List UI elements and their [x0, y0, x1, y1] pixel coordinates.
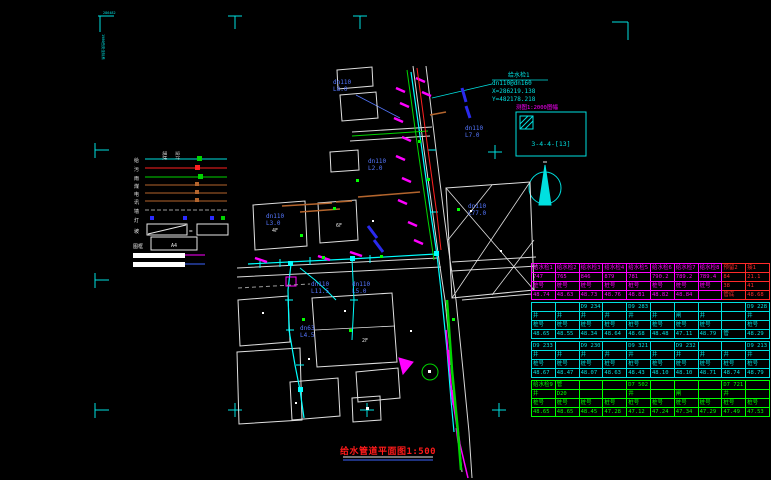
table-cell: 48.82: [650, 291, 674, 300]
table-cell: 47.28: [603, 408, 627, 417]
markers-rect: [452, 318, 455, 321]
table-cell: 桩号: [627, 360, 651, 369]
table-cell: 预留2: [722, 264, 746, 273]
table-cell: [698, 342, 722, 351]
legend-label: 图框: [133, 243, 143, 250]
table-cell: 桩号: [627, 282, 651, 291]
table-cell: [650, 303, 674, 312]
table-cell: D9 230: [579, 342, 603, 351]
markers-rect: [349, 329, 352, 332]
table-cell: 846: [579, 273, 603, 282]
table-cell: D7 502: [627, 381, 651, 390]
table-cell: 管: [555, 381, 579, 390]
buildings: [237, 67, 534, 424]
table-cell: 井: [532, 351, 556, 360]
table-cell: 48.68: [746, 291, 770, 300]
table-cell: 桩号: [627, 399, 651, 408]
table-cell: 桩号: [698, 282, 722, 291]
table-cell: 接1: [746, 264, 770, 273]
water-pipes-rect: [350, 256, 355, 261]
table-cell: 管底: [722, 291, 746, 300]
markers-rect: [418, 140, 421, 143]
legend-rect: [195, 190, 199, 194]
table-cell: D9 234: [579, 303, 603, 312]
hydrant-symbols-line: [408, 222, 417, 226]
pipe-labels-label: L2.0: [368, 165, 383, 172]
table-cell: 48.65: [532, 408, 556, 417]
table-cell: [579, 390, 603, 399]
table-cell: 48.81: [627, 291, 651, 300]
sheet-marks-label: 286482: [103, 11, 116, 15]
table-cell: 48.45: [579, 408, 603, 417]
water-pipes-rect: [288, 261, 293, 266]
buildings-polygon: [446, 182, 534, 298]
table-cell: 48.67: [532, 369, 556, 378]
table-cell: 47.11: [674, 330, 698, 339]
legend-label: 给: [134, 157, 139, 164]
table-cell: 48.64: [603, 330, 627, 339]
legend-label: 墙: [134, 208, 139, 215]
table-section-3: 给水检9管D7 502D7 721井D20井闸井桩号桩号桩号桩号桩号桩号桩号桩号…: [531, 380, 770, 417]
pipe-labels-label: 4F: [272, 228, 278, 234]
legend-rect: [195, 198, 199, 202]
table-cell: 781: [627, 273, 651, 282]
table-cell: 井: [532, 312, 556, 321]
pipe-labels-label: dn110: [352, 281, 370, 288]
table-cell: 井: [555, 312, 579, 321]
table-cell: [603, 381, 627, 390]
legend-label: 电: [134, 191, 139, 198]
utility-lines: [238, 68, 470, 470]
table-cell: 47.24: [650, 408, 674, 417]
legend-label: 煤: [134, 183, 139, 190]
table-section-1: D9 234D9 283D9 228井井井井井井闸井井桩号桩号桩号桩号桩号桩号桩…: [531, 302, 770, 339]
table-cell: 管: [722, 330, 746, 339]
legend-rect: [150, 216, 154, 220]
roads-line: [452, 257, 536, 262]
legend-rect: [133, 262, 185, 267]
markers-rect: [366, 407, 369, 410]
table-cell: 48.48: [650, 330, 674, 339]
table-cell: 桩号: [746, 399, 770, 408]
table-cell: [746, 381, 770, 390]
markers-rect: [380, 255, 383, 258]
table-cell: 桩号: [722, 399, 746, 408]
legend-rect: [197, 156, 202, 161]
detail-index: [516, 112, 586, 156]
table-cell: 桩号: [674, 360, 698, 369]
table-cell: 桩号: [674, 321, 698, 330]
table-cell: 给水检9: [532, 381, 556, 390]
annotation-well-name: 给水检1: [492, 72, 535, 80]
markers-rect: [427, 178, 430, 181]
table-cell: [674, 381, 698, 390]
pipe-labels-label: L77.0: [468, 210, 486, 217]
legend-label: 雨: [134, 176, 139, 182]
hydrant-symbols-polygon: [399, 358, 413, 374]
table-cell: 48.43: [627, 369, 651, 378]
utility-lines-line: [430, 112, 446, 115]
hydrant-symbols-line: [396, 156, 405, 160]
table-cell: 790.2: [650, 273, 674, 282]
detail-index-rect: [516, 112, 586, 156]
hydrant-symbols-line: [350, 252, 362, 256]
table-cell: 桩号: [698, 399, 722, 408]
legend-label: 坡: [134, 228, 139, 235]
table-cell: 给水检2: [555, 264, 579, 273]
pipe-labels-label: dn110: [368, 158, 386, 165]
water-pipes-rect: [434, 251, 439, 256]
table-cell: 桩号: [746, 360, 770, 369]
table-cell: 井: [627, 390, 651, 399]
table-cell: 48.29: [746, 330, 770, 339]
table-cell: 48.79: [698, 330, 722, 339]
table-cell: 井: [674, 351, 698, 360]
buildings-line: [446, 188, 534, 290]
table-cell: 48.10: [650, 369, 674, 378]
north-arrow-polygon: [539, 165, 551, 205]
annotation-pipe-spec: dn110@dn160: [492, 80, 535, 88]
table-cell: 47.29: [698, 408, 722, 417]
table-cell: D20: [555, 390, 579, 399]
legend-line: [148, 225, 186, 234]
table-cell: 48.63: [555, 291, 579, 300]
table-cell: 765: [555, 273, 579, 282]
table-cell: 给水检3: [579, 264, 603, 273]
hydrant-symbols-line: [255, 258, 267, 262]
table-cell: 789.4: [698, 273, 722, 282]
table-cell: 桩号: [746, 321, 770, 330]
pipe-labels-label: 2F: [362, 338, 368, 344]
table-cell: 47.12: [627, 408, 651, 417]
legend-rect: [221, 216, 225, 220]
table-cell: 井: [698, 312, 722, 321]
table-cell: 47.49: [722, 408, 746, 417]
roads-line: [452, 266, 537, 271]
legend-label: 灯: [134, 217, 139, 224]
table-cell: 38: [722, 282, 746, 291]
legend-rect: [183, 216, 187, 220]
legend-rect: [195, 165, 200, 170]
table-cell: 给水检1: [532, 264, 556, 273]
pipe-labels-label: L7.0: [465, 132, 480, 139]
table-cell: D9 283: [627, 303, 651, 312]
pipe-labels-label: L4.5: [300, 332, 315, 339]
table-cell: 桩号: [579, 399, 603, 408]
table-cell: 48.76: [603, 291, 627, 300]
table-cell: 井: [650, 351, 674, 360]
table-cell: 桩号: [674, 399, 698, 408]
markers-rect: [410, 330, 412, 332]
buildings-line: [452, 182, 530, 298]
table-cell: 给水检4: [603, 264, 627, 273]
sheet-marks-label: 1980西安坐标系: [101, 34, 106, 60]
table-cell: 井: [579, 312, 603, 321]
table-cell: 桩号: [603, 360, 627, 369]
table-cell: 井: [698, 351, 722, 360]
table-cell: [722, 321, 746, 330]
markers-rect: [322, 256, 325, 259]
hydrant-symbols: [255, 78, 468, 478]
buildings-polygon: [312, 293, 397, 367]
table-cell: 48.65: [555, 408, 579, 417]
markers-rect: [372, 220, 374, 222]
table-cell: 84: [722, 273, 746, 282]
legend-rect: [195, 182, 199, 186]
table-cell: 井: [627, 351, 651, 360]
table-cell: 桩号: [579, 282, 603, 291]
markers-rect: [262, 312, 264, 314]
table-cell: [722, 342, 746, 351]
utility-lines-line: [374, 240, 383, 252]
pipe-labels-label: 6F: [336, 223, 342, 229]
table-cell: [555, 342, 579, 351]
utility-lines-line: [368, 226, 377, 238]
pipe-labels-label: dn110: [465, 125, 483, 132]
table-cell: 桩号: [532, 321, 556, 330]
table-cell: 桩号: [579, 321, 603, 330]
table-cell: 桩号: [555, 360, 579, 369]
pipe-labels: dn110L8.0dn110L7.0dn110L77.0dn110L3.0dn1…: [266, 79, 486, 344]
table-cell: 桩号: [555, 399, 579, 408]
detail-index-sheet-no: 3-4-4-[13]: [516, 140, 586, 148]
utility-lines-line: [238, 284, 310, 288]
table-cell: 桩号: [650, 360, 674, 369]
table-cell: D7 721: [722, 381, 746, 390]
table-cell: [746, 390, 770, 399]
drawing-title: 给水管道平面图1:500: [336, 444, 440, 457]
table-cell: 井: [603, 351, 627, 360]
markers-rect: [356, 179, 359, 182]
table-cell: [532, 303, 556, 312]
table-cell: [698, 390, 722, 399]
table-cell: [722, 303, 746, 312]
utility-lines-line: [358, 192, 420, 197]
buildings-polygon: [237, 348, 302, 424]
table-cell: [698, 303, 722, 312]
table-cell: 桩号: [603, 282, 627, 291]
roads-line: [462, 294, 532, 300]
table-cell: 井: [746, 351, 770, 360]
table-cell: 井: [603, 312, 627, 321]
buildings-polygon: [238, 296, 290, 346]
table-cell: 给水检6: [650, 264, 674, 273]
table-cell: [698, 291, 722, 300]
buildings-polygon: [318, 200, 358, 243]
table-cell: 井: [627, 312, 651, 321]
buildings-polygon: [290, 378, 340, 420]
markers-rect: [333, 207, 336, 210]
table-cell: 47.53: [746, 408, 770, 417]
table-cell: 桩号: [650, 321, 674, 330]
detail-index-caption: 测图1:2000图幅: [516, 103, 558, 111]
pipe-labels-label: dn110: [266, 213, 284, 220]
table-cell: 747: [532, 273, 556, 282]
table-cell: [650, 390, 674, 399]
markers-rect: [500, 250, 502, 252]
hydrant-symbols-line: [414, 240, 423, 244]
table-cell: 桩号: [674, 282, 698, 291]
markers-rect: [295, 402, 297, 404]
table-cell: [650, 342, 674, 351]
table-cell: 48.55: [555, 330, 579, 339]
legend: 现状设计给污雨煤电讯墙灯坡=图框A4: [133, 151, 228, 267]
table-cell: [650, 381, 674, 390]
table-cell: 789.2: [674, 273, 698, 282]
table-cell: 给水检8: [698, 264, 722, 273]
table-cell: 48.34: [579, 330, 603, 339]
table-cell: 井: [722, 351, 746, 360]
legend-label: =: [189, 228, 193, 235]
legend-label: 讯: [134, 199, 139, 206]
utility-lines-line: [282, 203, 332, 206]
hydrant-symbols-line: [416, 78, 425, 82]
table-cell: 桩号: [532, 282, 556, 291]
table-cell: D9 233: [532, 342, 556, 351]
table-cell: 闸: [674, 312, 698, 321]
table-cell: 48.71: [698, 369, 722, 378]
pipe-labels-label: dn63: [300, 325, 315, 332]
markers-rect: [344, 310, 346, 312]
table-cell: 47.34: [674, 408, 698, 417]
legend-rect: [210, 216, 214, 220]
roads-line: [237, 267, 441, 277]
table-cell: D9 321: [627, 342, 651, 351]
utility-lines-line: [336, 201, 352, 202]
pipe-labels-label: L8.0: [333, 86, 348, 93]
legend-rect: [197, 224, 228, 235]
table-cell: D9 228: [746, 303, 770, 312]
hydrant-symbols-line: [394, 118, 403, 122]
manhole-data-table: 给水检1给水检2给水检3给水检4给水检5给水检6给水检7给水检8预留2接1747…: [531, 263, 770, 419]
north-arrow: [529, 162, 561, 205]
table-cell: [579, 381, 603, 390]
table-cell: [674, 303, 698, 312]
table-cell: 桩号: [722, 360, 746, 369]
table-cell: 桩号: [603, 399, 627, 408]
table-cell: [722, 312, 746, 321]
table-cell: 48.07: [579, 369, 603, 378]
legend-rect: [198, 174, 203, 179]
legend-label: 现状: [161, 151, 168, 160]
table-cell: 桩号: [532, 360, 556, 369]
hydrant-symbols-line: [402, 178, 411, 182]
table-cell: 48.63: [603, 369, 627, 378]
buildings-line: [315, 326, 395, 330]
table-cell: 桩号: [532, 399, 556, 408]
legend-label: A4: [171, 243, 177, 249]
table-cell: 21.1: [746, 273, 770, 282]
table-cell: [603, 342, 627, 351]
pipe-labels-label: L5.0: [352, 288, 367, 295]
table-cell: 48.68: [627, 330, 651, 339]
table-cell: 桩号: [698, 360, 722, 369]
table-cell: 桩号: [555, 282, 579, 291]
table-cell: 井: [650, 312, 674, 321]
table-cell: 48.65: [532, 330, 556, 339]
table-cell: 桩号: [650, 399, 674, 408]
table-cell: [603, 303, 627, 312]
table-cell: 48.84: [674, 291, 698, 300]
table-cell: 48.10: [674, 369, 698, 378]
legend-label: 设计: [174, 151, 181, 160]
markers-rect: [428, 370, 431, 373]
hydrant-symbols-line: [400, 103, 409, 107]
water-pipes-rect: [298, 387, 303, 392]
table-cell: [698, 381, 722, 390]
table-cell: 给水检7: [674, 264, 698, 273]
markers-rect: [308, 358, 310, 360]
legend-rect: [133, 253, 185, 258]
table-cell: D9 232: [674, 342, 698, 351]
buildings-polygon: [330, 150, 359, 172]
roads: [237, 66, 537, 478]
table-cell: 48.73: [579, 291, 603, 300]
pipe-labels-label: L3.0: [266, 220, 281, 227]
table-cell: 桩号: [603, 321, 627, 330]
markers-rect: [457, 208, 460, 211]
table-cell: [555, 303, 579, 312]
table-cell: D9 213: [746, 342, 770, 351]
markers-rect: [300, 234, 303, 237]
table-cell: 48.74: [722, 369, 746, 378]
pipe-labels-label: dn110: [311, 281, 329, 288]
table-cell: [603, 390, 627, 399]
table-cell: 桩号: [579, 360, 603, 369]
title-underline: [343, 457, 433, 460]
table-cell: 桩号: [650, 282, 674, 291]
table-cell: 给水检5: [627, 264, 651, 273]
markers-rect: [302, 318, 305, 321]
table-cell: 井: [579, 351, 603, 360]
table-cell: 48.74: [532, 291, 556, 300]
table-cell: 井: [555, 351, 579, 360]
hydrant-symbols-line: [396, 88, 405, 92]
table-section-2: D9 233D9 230D9 321D9 232D9 213井井井井井井井井井井…: [531, 341, 770, 378]
pipe-labels-label: dn110: [468, 203, 486, 210]
table-cell: 41: [746, 282, 770, 291]
survey-annotation-block: 给水检1 dn110@dn160 X=286219.138 Y=482178.2…: [492, 72, 535, 104]
table-cell: 桩号: [698, 321, 722, 330]
pipe-labels-label: L11.5: [311, 288, 329, 295]
legend-label: 污: [134, 166, 139, 173]
pipe-labels-label: dn110: [333, 79, 351, 86]
table-cell: 井: [532, 390, 556, 399]
table-cell: 48.79: [746, 369, 770, 378]
table-cell: 闸: [674, 390, 698, 399]
hydrant-symbols-line: [398, 200, 407, 204]
table-section-0: 给水检1给水检2给水检3给水检4给水检5给水检6给水检7给水检8预留2接1747…: [531, 263, 770, 300]
table-cell: 桩号: [555, 321, 579, 330]
utility-lines-line: [466, 106, 470, 118]
table-cell: 井: [746, 312, 770, 321]
table-cell: 879: [603, 273, 627, 282]
table-cell: 井: [722, 390, 746, 399]
table-cell: 桩号: [627, 321, 651, 330]
annotation-x-coord: X=286219.138: [492, 88, 535, 96]
cad-drawing-canvas[interactable]: 2864821980西安坐标系现状设计给污雨煤电讯墙灯坡=图框A4dn110L8…: [0, 0, 771, 480]
table-cell: 48.47: [555, 369, 579, 378]
